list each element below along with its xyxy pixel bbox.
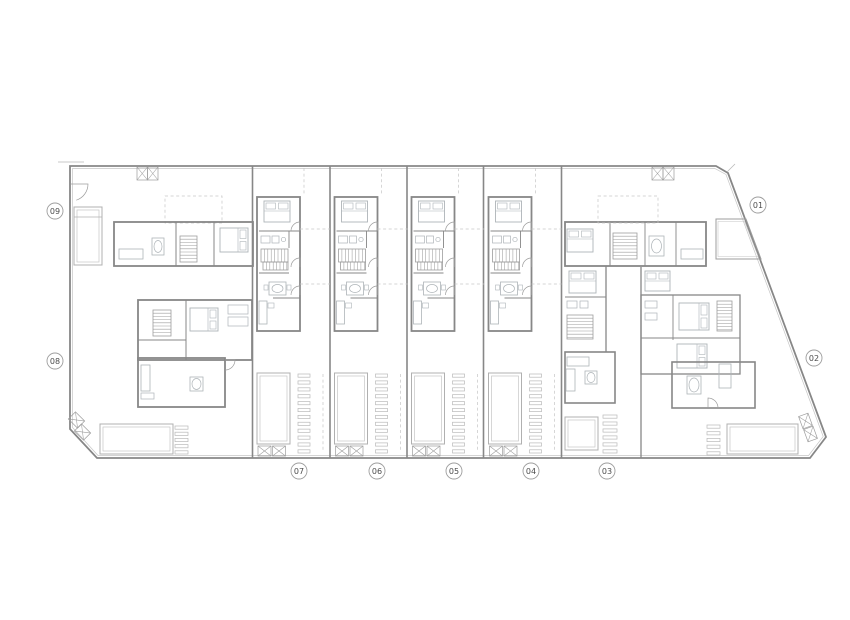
townhouse-unit-4 [489, 168, 562, 456]
unit-label-text: 08 [50, 357, 60, 366]
unit-label-text: 05 [449, 467, 459, 476]
unit-label-02: 02 [806, 350, 822, 366]
unit-label-text: 04 [526, 467, 536, 476]
hatched-marker [799, 413, 813, 429]
hatched-marker [804, 426, 818, 442]
unit-label-06: 06 [369, 463, 385, 479]
unit-label-09: 09 [47, 203, 63, 219]
unit-label-08: 08 [47, 353, 63, 369]
hatched-marker [490, 446, 503, 456]
unit-label-04: 04 [523, 463, 539, 479]
unit-label-07: 07 [291, 463, 307, 479]
hatched-marker [137, 167, 148, 180]
unit-label-text: 07 [294, 467, 304, 476]
floor-plan-page: 010203040506070809 [0, 0, 850, 620]
unit-label-text: 02 [809, 354, 819, 363]
hatched-marker [336, 446, 349, 456]
hatched-marker [273, 446, 286, 456]
hatched-marker [148, 167, 159, 180]
site-and-blocks [58, 162, 826, 458]
hatched-marker [258, 446, 271, 456]
unit-label-text: 01 [753, 201, 763, 210]
unit-label-text: 09 [50, 207, 60, 216]
unit-label-01: 01 [750, 197, 766, 213]
floor-plan-drawing: 010203040506070809 [0, 0, 850, 620]
hatched-marker [663, 167, 674, 180]
unit-label-text: 06 [372, 467, 382, 476]
townhouse-unit-2 [335, 168, 408, 456]
hatched-marker [413, 446, 426, 456]
unit-label-05: 05 [446, 463, 462, 479]
hatched-marker [350, 446, 363, 456]
townhouse-unit-3 [412, 168, 485, 456]
hatched-marker [427, 446, 440, 456]
townhouse-unit-1 [257, 168, 330, 456]
unit-label-text: 03 [602, 467, 612, 476]
unit-label-03: 03 [599, 463, 615, 479]
hatched-marker [652, 167, 663, 180]
hatched-marker [504, 446, 517, 456]
